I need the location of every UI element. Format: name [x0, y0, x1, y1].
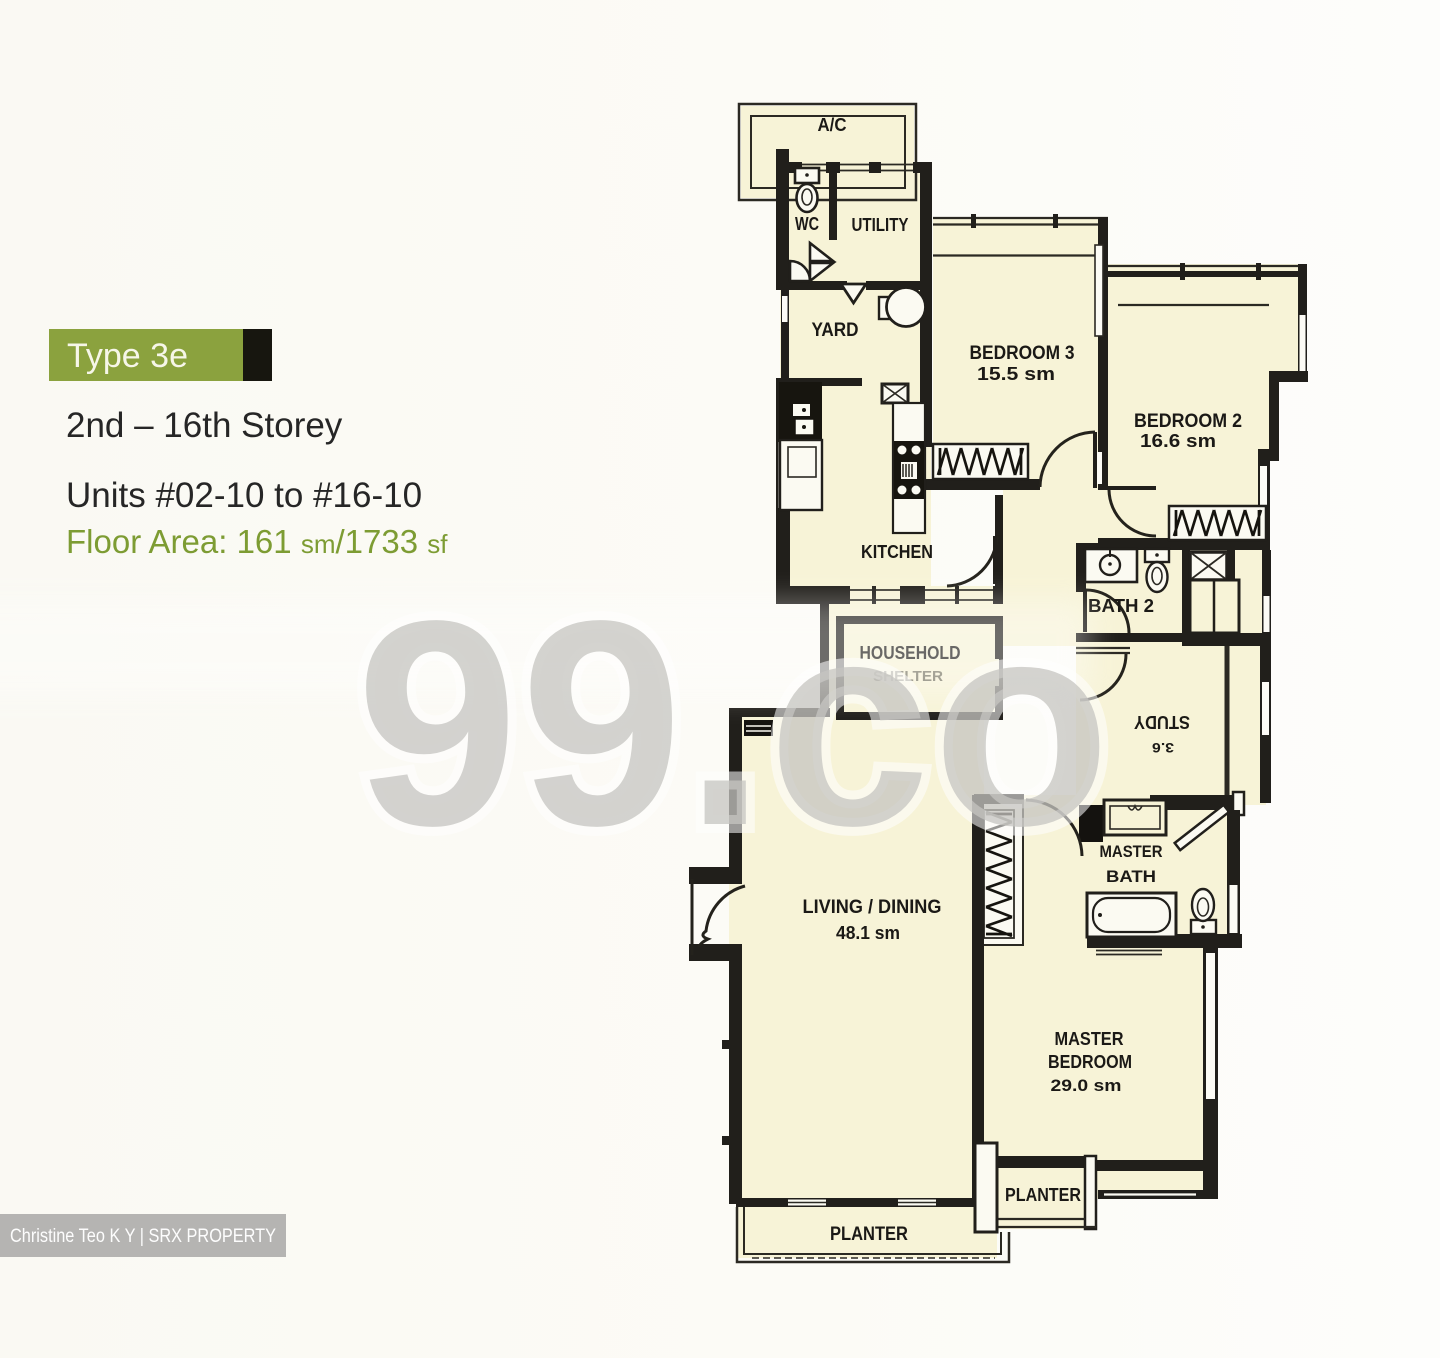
svg-text:Floor Area: 161 sm/1733 sf: Floor Area: 161 sm/1733 sf — [66, 523, 448, 560]
svg-text:Type 3e: Type 3e — [67, 337, 188, 375]
svg-text:Christine Teo K Y | SRX PROPER: Christine Teo K Y | SRX PROPERTY — [10, 1225, 276, 1247]
svg-text:16.6 sm: 16.6 sm — [1140, 431, 1216, 451]
svg-text:3.6: 3.6 — [1152, 740, 1174, 756]
svg-text:BEDROOM 3: BEDROOM 3 — [970, 343, 1075, 364]
svg-text:A/C: A/C — [818, 115, 847, 135]
svg-text:STUDY: STUDY — [1134, 712, 1190, 732]
svg-text:15.5 sm: 15.5 sm — [977, 364, 1055, 384]
svg-text:MASTER: MASTER — [1055, 1029, 1124, 1049]
svg-text:PLANTER: PLANTER — [830, 1224, 908, 1245]
svg-text:2nd – 16th Storey: 2nd – 16th Storey — [66, 406, 343, 445]
svg-text:BEDROOM: BEDROOM — [1048, 1052, 1132, 1072]
svg-text:PLANTER: PLANTER — [1005, 1185, 1081, 1205]
svg-text:WC: WC — [795, 214, 819, 234]
svg-text:BATH: BATH — [1106, 867, 1156, 886]
svg-text:99.co: 99.co — [356, 560, 1113, 886]
svg-text:UTILITY: UTILITY — [852, 215, 909, 235]
svg-text:48.1 sm: 48.1 sm — [836, 923, 900, 943]
svg-text:29.0 sm: 29.0 sm — [1051, 1076, 1122, 1095]
svg-text:LIVING / DINING: LIVING / DINING — [803, 897, 942, 918]
svg-text:Units #02-10 to #16-10: Units #02-10 to #16-10 — [66, 476, 422, 515]
svg-text:KITCHEN: KITCHEN — [861, 542, 933, 562]
svg-text:BEDROOM 2: BEDROOM 2 — [1134, 411, 1242, 432]
svg-text:YARD: YARD — [812, 320, 859, 341]
